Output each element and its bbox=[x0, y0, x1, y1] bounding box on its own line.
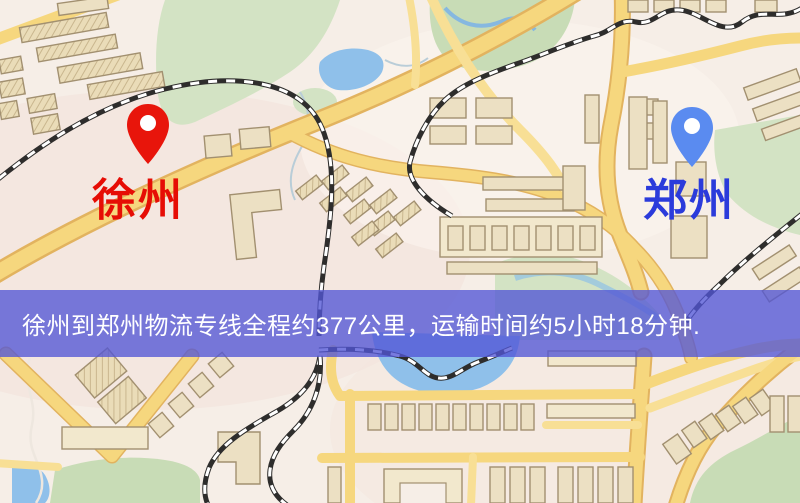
map-canvas bbox=[0, 0, 800, 503]
pin-icon bbox=[671, 107, 713, 167]
origin-pin[interactable] bbox=[126, 103, 170, 165]
destination-pin[interactable] bbox=[670, 106, 714, 168]
pin-icon bbox=[127, 104, 169, 164]
pin-hole bbox=[684, 118, 700, 134]
origin-label: 徐州 bbox=[92, 179, 184, 223]
pin-hole bbox=[140, 115, 156, 131]
destination-label: 郑州 bbox=[643, 179, 735, 223]
route-info-text: 徐州到郑州物流专线全程约377公里，运输时间约5小时18分钟. bbox=[22, 306, 700, 341]
map-view[interactable]: 徐州到郑州物流专线全程约377公里，运输时间约5小时18分钟. 徐州 郑州 bbox=[0, 0, 800, 503]
route-info-banner: 徐州到郑州物流专线全程约377公里，运输时间约5小时18分钟. bbox=[0, 290, 800, 357]
